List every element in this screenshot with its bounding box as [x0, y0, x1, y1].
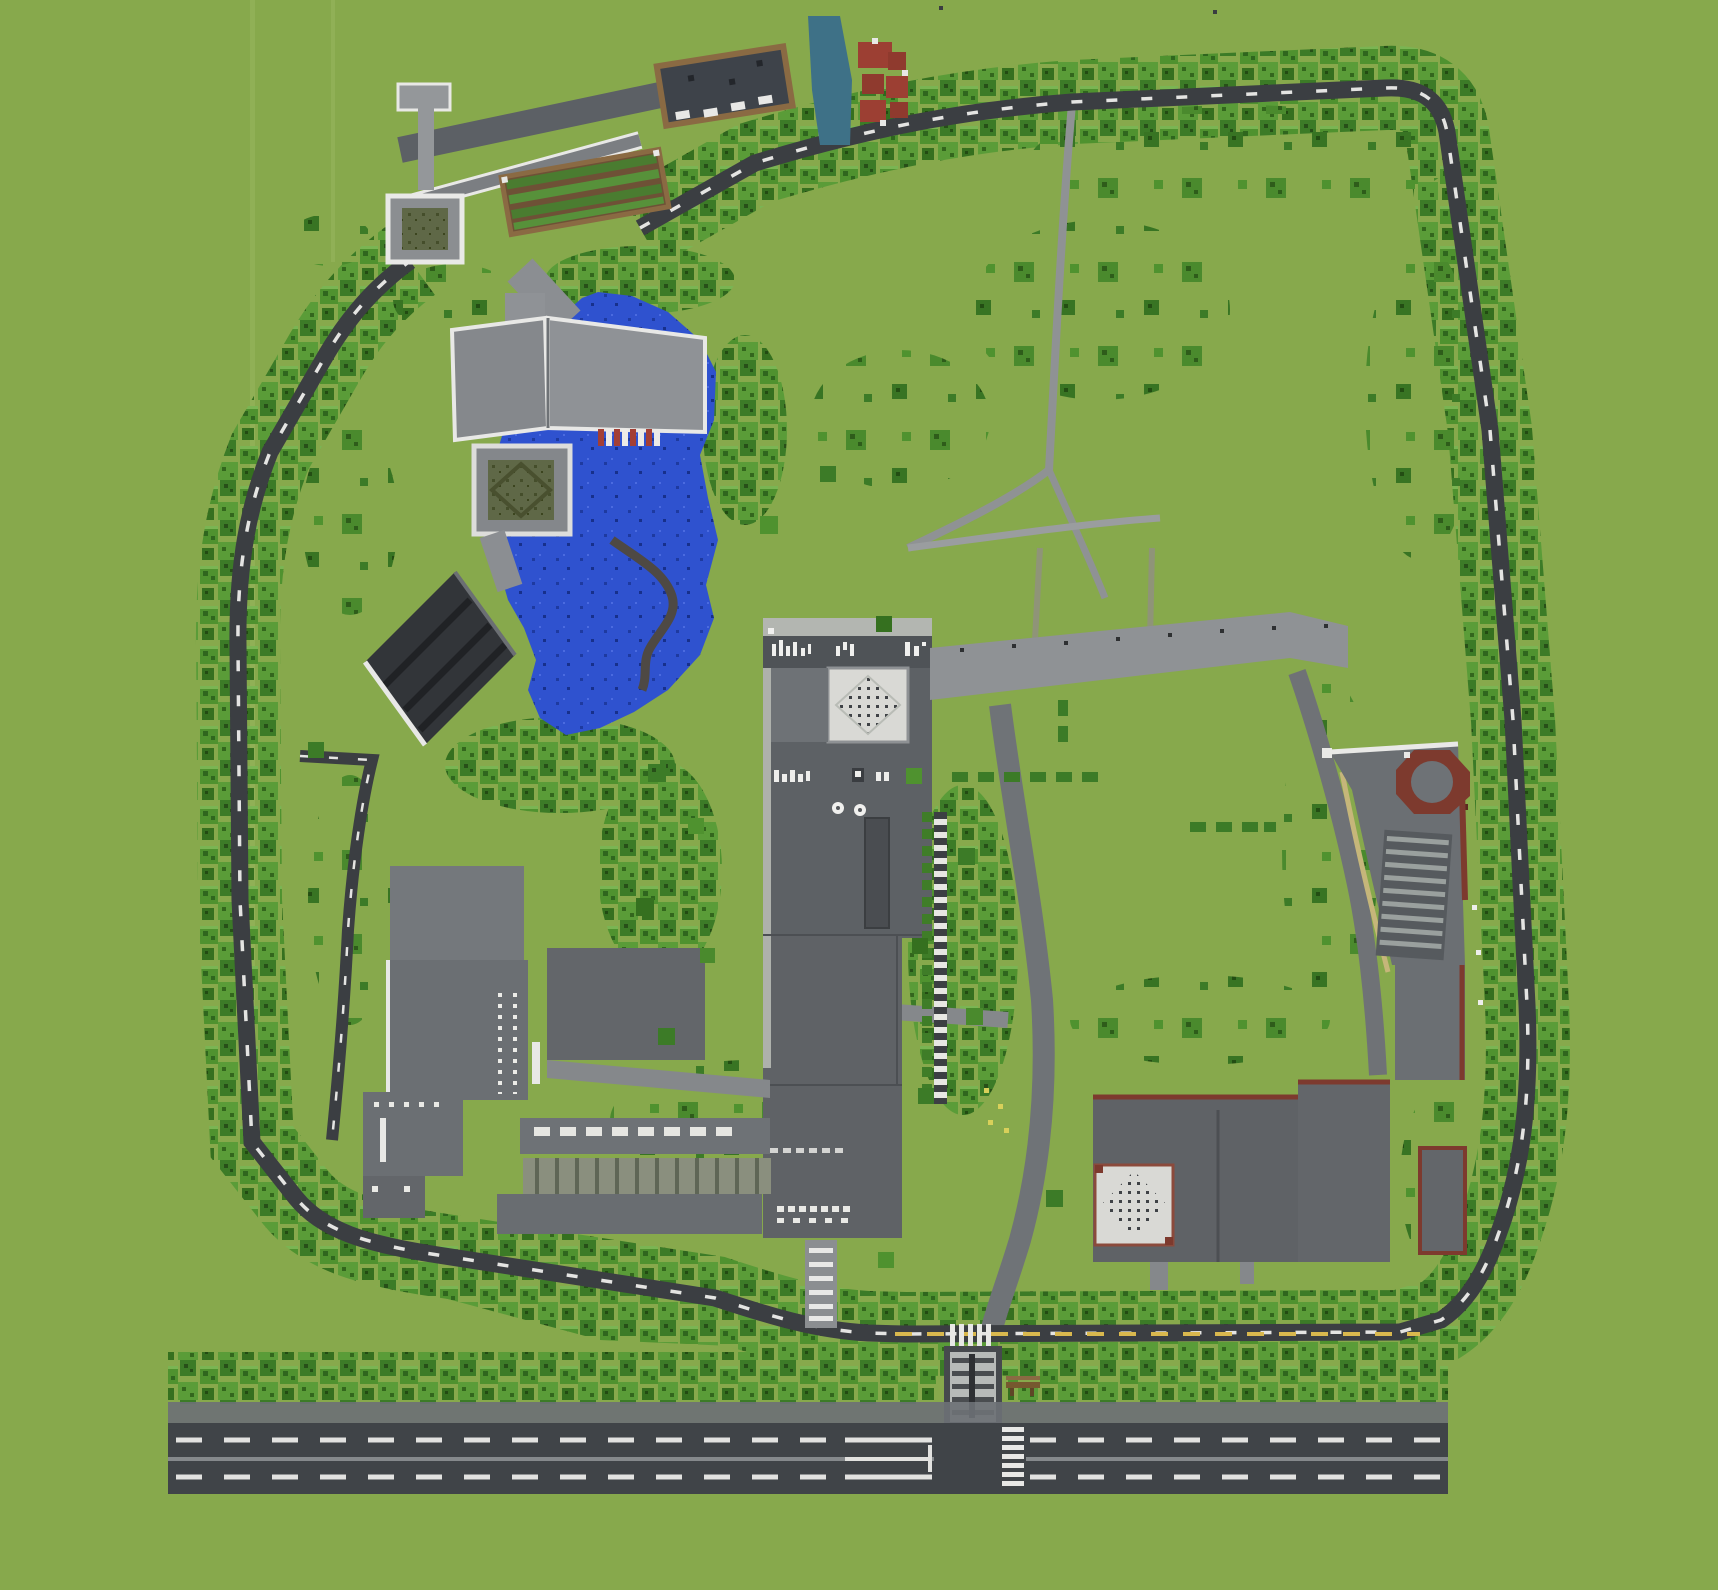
courtyard-lodge [388, 196, 462, 262]
olive-courtyard-building [474, 446, 570, 534]
map-canvas[interactable]: Overhead Minecraft-style map render of a… [0, 0, 1718, 1590]
north-path-stub [418, 92, 434, 190]
highway-berm [168, 1402, 1448, 1424]
highway-hedge-east [1008, 1352, 1448, 1404]
stair-rows [1376, 830, 1453, 960]
west-edge-walk [763, 668, 771, 1068]
green-roof-strips [523, 1158, 771, 1194]
campus-map-render [0, 0, 1718, 1590]
window-dot-grid [492, 988, 526, 1094]
highway-hedge-west [168, 1352, 936, 1404]
diamond-courtyard [828, 668, 908, 742]
striped-walkway [805, 1240, 837, 1328]
main-highway [168, 1423, 1448, 1494]
se-diamond-courtyard [1095, 1165, 1173, 1245]
